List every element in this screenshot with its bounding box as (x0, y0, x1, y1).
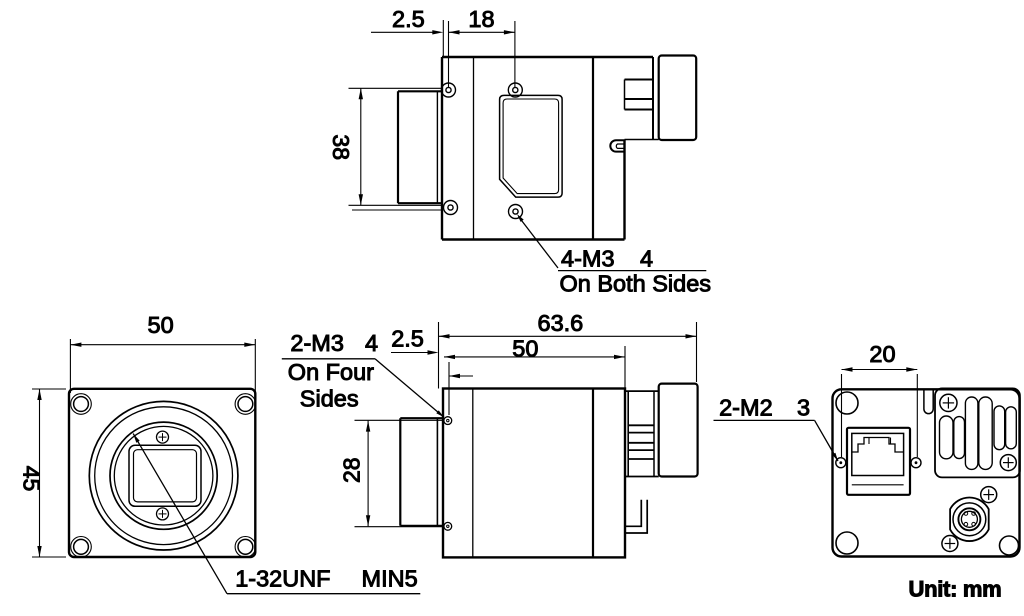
svg-text:MIN5: MIN5 (362, 566, 418, 592)
svg-text:2-M3: 2-M3 (290, 330, 344, 356)
svg-text:On Both Sides: On Both Sides (560, 270, 712, 296)
svg-text:2-M2: 2-M2 (719, 394, 773, 420)
svg-text:28: 28 (339, 457, 365, 483)
svg-text:Sides: Sides (300, 385, 359, 411)
svg-text:38: 38 (328, 134, 354, 160)
svg-text:63.6: 63.6 (538, 310, 584, 336)
svg-text:2.5: 2.5 (392, 6, 425, 32)
svg-text:Unit: mm: Unit: mm (909, 577, 1002, 602)
svg-text:50: 50 (148, 312, 174, 338)
svg-text:2.5: 2.5 (391, 326, 424, 352)
svg-text:4: 4 (365, 330, 378, 356)
svg-text:1-32UNF: 1-32UNF (235, 566, 330, 592)
svg-text:50: 50 (512, 336, 538, 362)
svg-text:3: 3 (797, 394, 810, 420)
svg-text:20: 20 (869, 341, 895, 367)
svg-text:On Four: On Four (288, 359, 374, 385)
svg-text:18: 18 (468, 6, 494, 32)
svg-text:4-M3: 4-M3 (561, 246, 615, 272)
svg-text:4: 4 (640, 246, 653, 272)
svg-text:45: 45 (19, 466, 45, 492)
